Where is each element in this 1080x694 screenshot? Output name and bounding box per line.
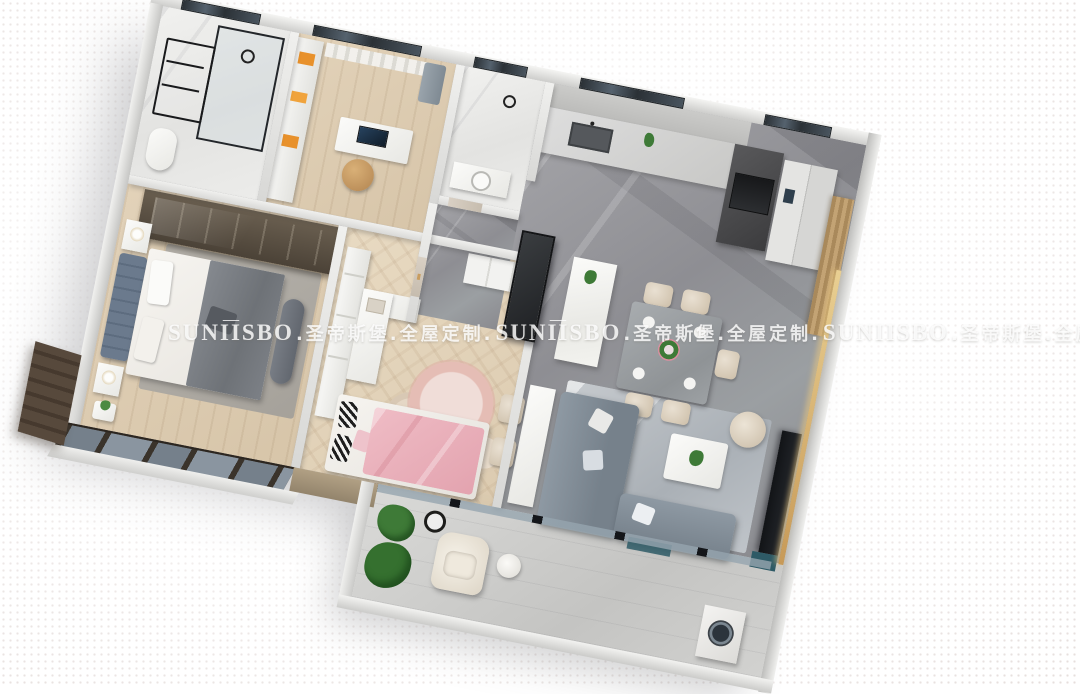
- watermark-text: SUNIISBO: [168, 320, 294, 345]
- watermark-brand: SUNIISBO: [168, 320, 294, 346]
- watermark-text-cjk: .圣帝斯堡.全屋定制.: [294, 320, 496, 346]
- sofa-pillow-gray: [582, 450, 603, 471]
- built-in-oven: [729, 172, 775, 215]
- kids-pillow-bw-1: [338, 401, 358, 429]
- watermark-brand: SUNIISBO: [495, 320, 621, 346]
- watermark-text: SUNIISBO: [823, 320, 949, 345]
- watermark-text-cjk: .圣帝斯堡.全屋定制.: [949, 320, 1080, 346]
- watermark-text-cjk: .圣帝斯堡.全屋定制.: [621, 320, 823, 346]
- watermark-text: SUNIISBO: [495, 320, 621, 345]
- crown-icon: [875, 320, 897, 321]
- watermark-brand: SUNIISBO: [823, 320, 949, 346]
- crown-icon: [547, 320, 569, 321]
- watermark: SUNIISBO .圣帝斯堡.全屋定制. SUNIISBO .圣帝斯堡.全屋定制…: [168, 320, 1080, 362]
- crown-icon: [220, 320, 242, 321]
